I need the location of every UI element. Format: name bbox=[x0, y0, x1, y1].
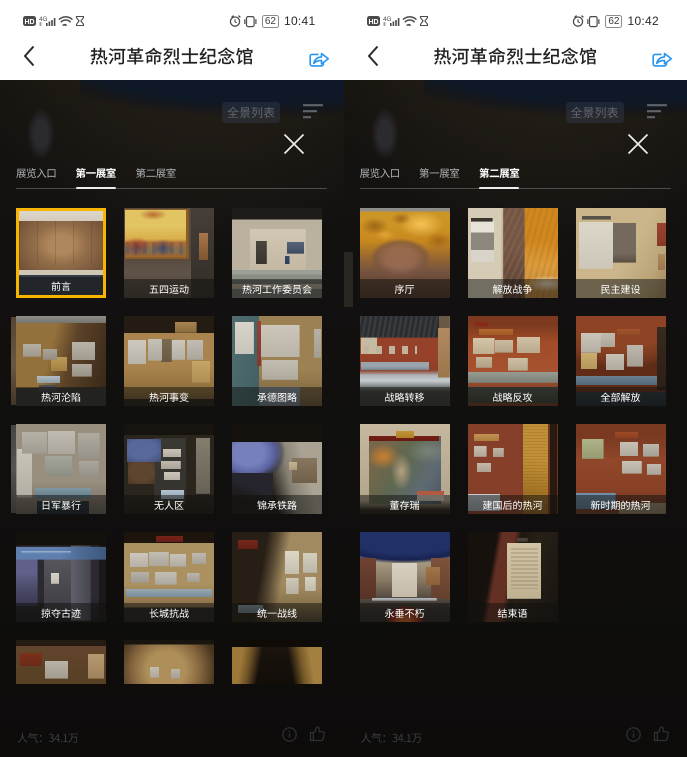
svg-text:HD: HD bbox=[24, 19, 34, 26]
svg-text:HD: HD bbox=[368, 19, 378, 26]
svg-text:4G: 4G bbox=[383, 16, 392, 23]
svg-text:4G: 4G bbox=[39, 16, 48, 23]
